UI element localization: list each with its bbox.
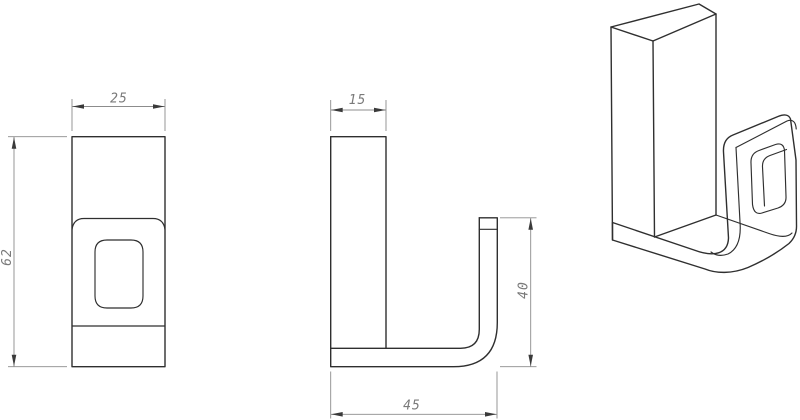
dim-front-height: 62: [0, 137, 67, 367]
arrowhead: [12, 355, 17, 367]
side-view: [331, 137, 498, 367]
dim-label-front-width: 25: [110, 92, 128, 107]
drawing-svg: 25 62 15 40: [0, 0, 800, 420]
side-inner-profile: [331, 218, 480, 348]
dim-hook-height: 40: [500, 218, 537, 367]
dimensions: 25 62 15 40: [0, 92, 537, 419]
dim-label-base-length: 45: [403, 399, 421, 414]
arrowhead: [12, 137, 17, 149]
dim-label-side-depth: 15: [349, 93, 367, 108]
dim-front-width: 25: [72, 92, 165, 132]
dim-side-depth: 15: [331, 93, 386, 131]
arrowhead: [528, 218, 533, 230]
isometric-view: [611, 4, 797, 272]
iso-box-top-face: [611, 4, 716, 41]
arrowhead: [72, 104, 84, 109]
iso-box-front-edge: [653, 41, 655, 237]
front-slot-hole: [95, 240, 143, 308]
front-outline: [72, 137, 165, 367]
front-hook-shoulder-line: [72, 219, 165, 230]
dim-label-hook-height: 40: [517, 281, 532, 299]
side-back-plate: [331, 137, 386, 349]
arrowhead: [374, 108, 386, 113]
arrowhead: [153, 104, 165, 109]
technical-drawing-sheet: 25 62 15 40: [0, 0, 800, 420]
dim-label-front-height: 62: [0, 248, 15, 266]
iso-slot-hole: [751, 144, 786, 214]
arrowhead: [331, 108, 343, 113]
arrowhead: [331, 412, 343, 417]
front-view: [72, 137, 165, 367]
iso-hook-silhouette: [613, 115, 797, 272]
arrowhead: [528, 355, 533, 367]
iso-plate-inner-top-edge: [736, 120, 796, 147]
side-outer-profile: [331, 137, 498, 367]
iso-slot-inner-wall: [762, 150, 786, 207]
dim-base-length: 45: [331, 372, 497, 419]
arrowhead: [485, 412, 497, 417]
iso-box-bottom-edge: [655, 215, 717, 237]
iso-box-left-edge: [611, 27, 613, 240]
